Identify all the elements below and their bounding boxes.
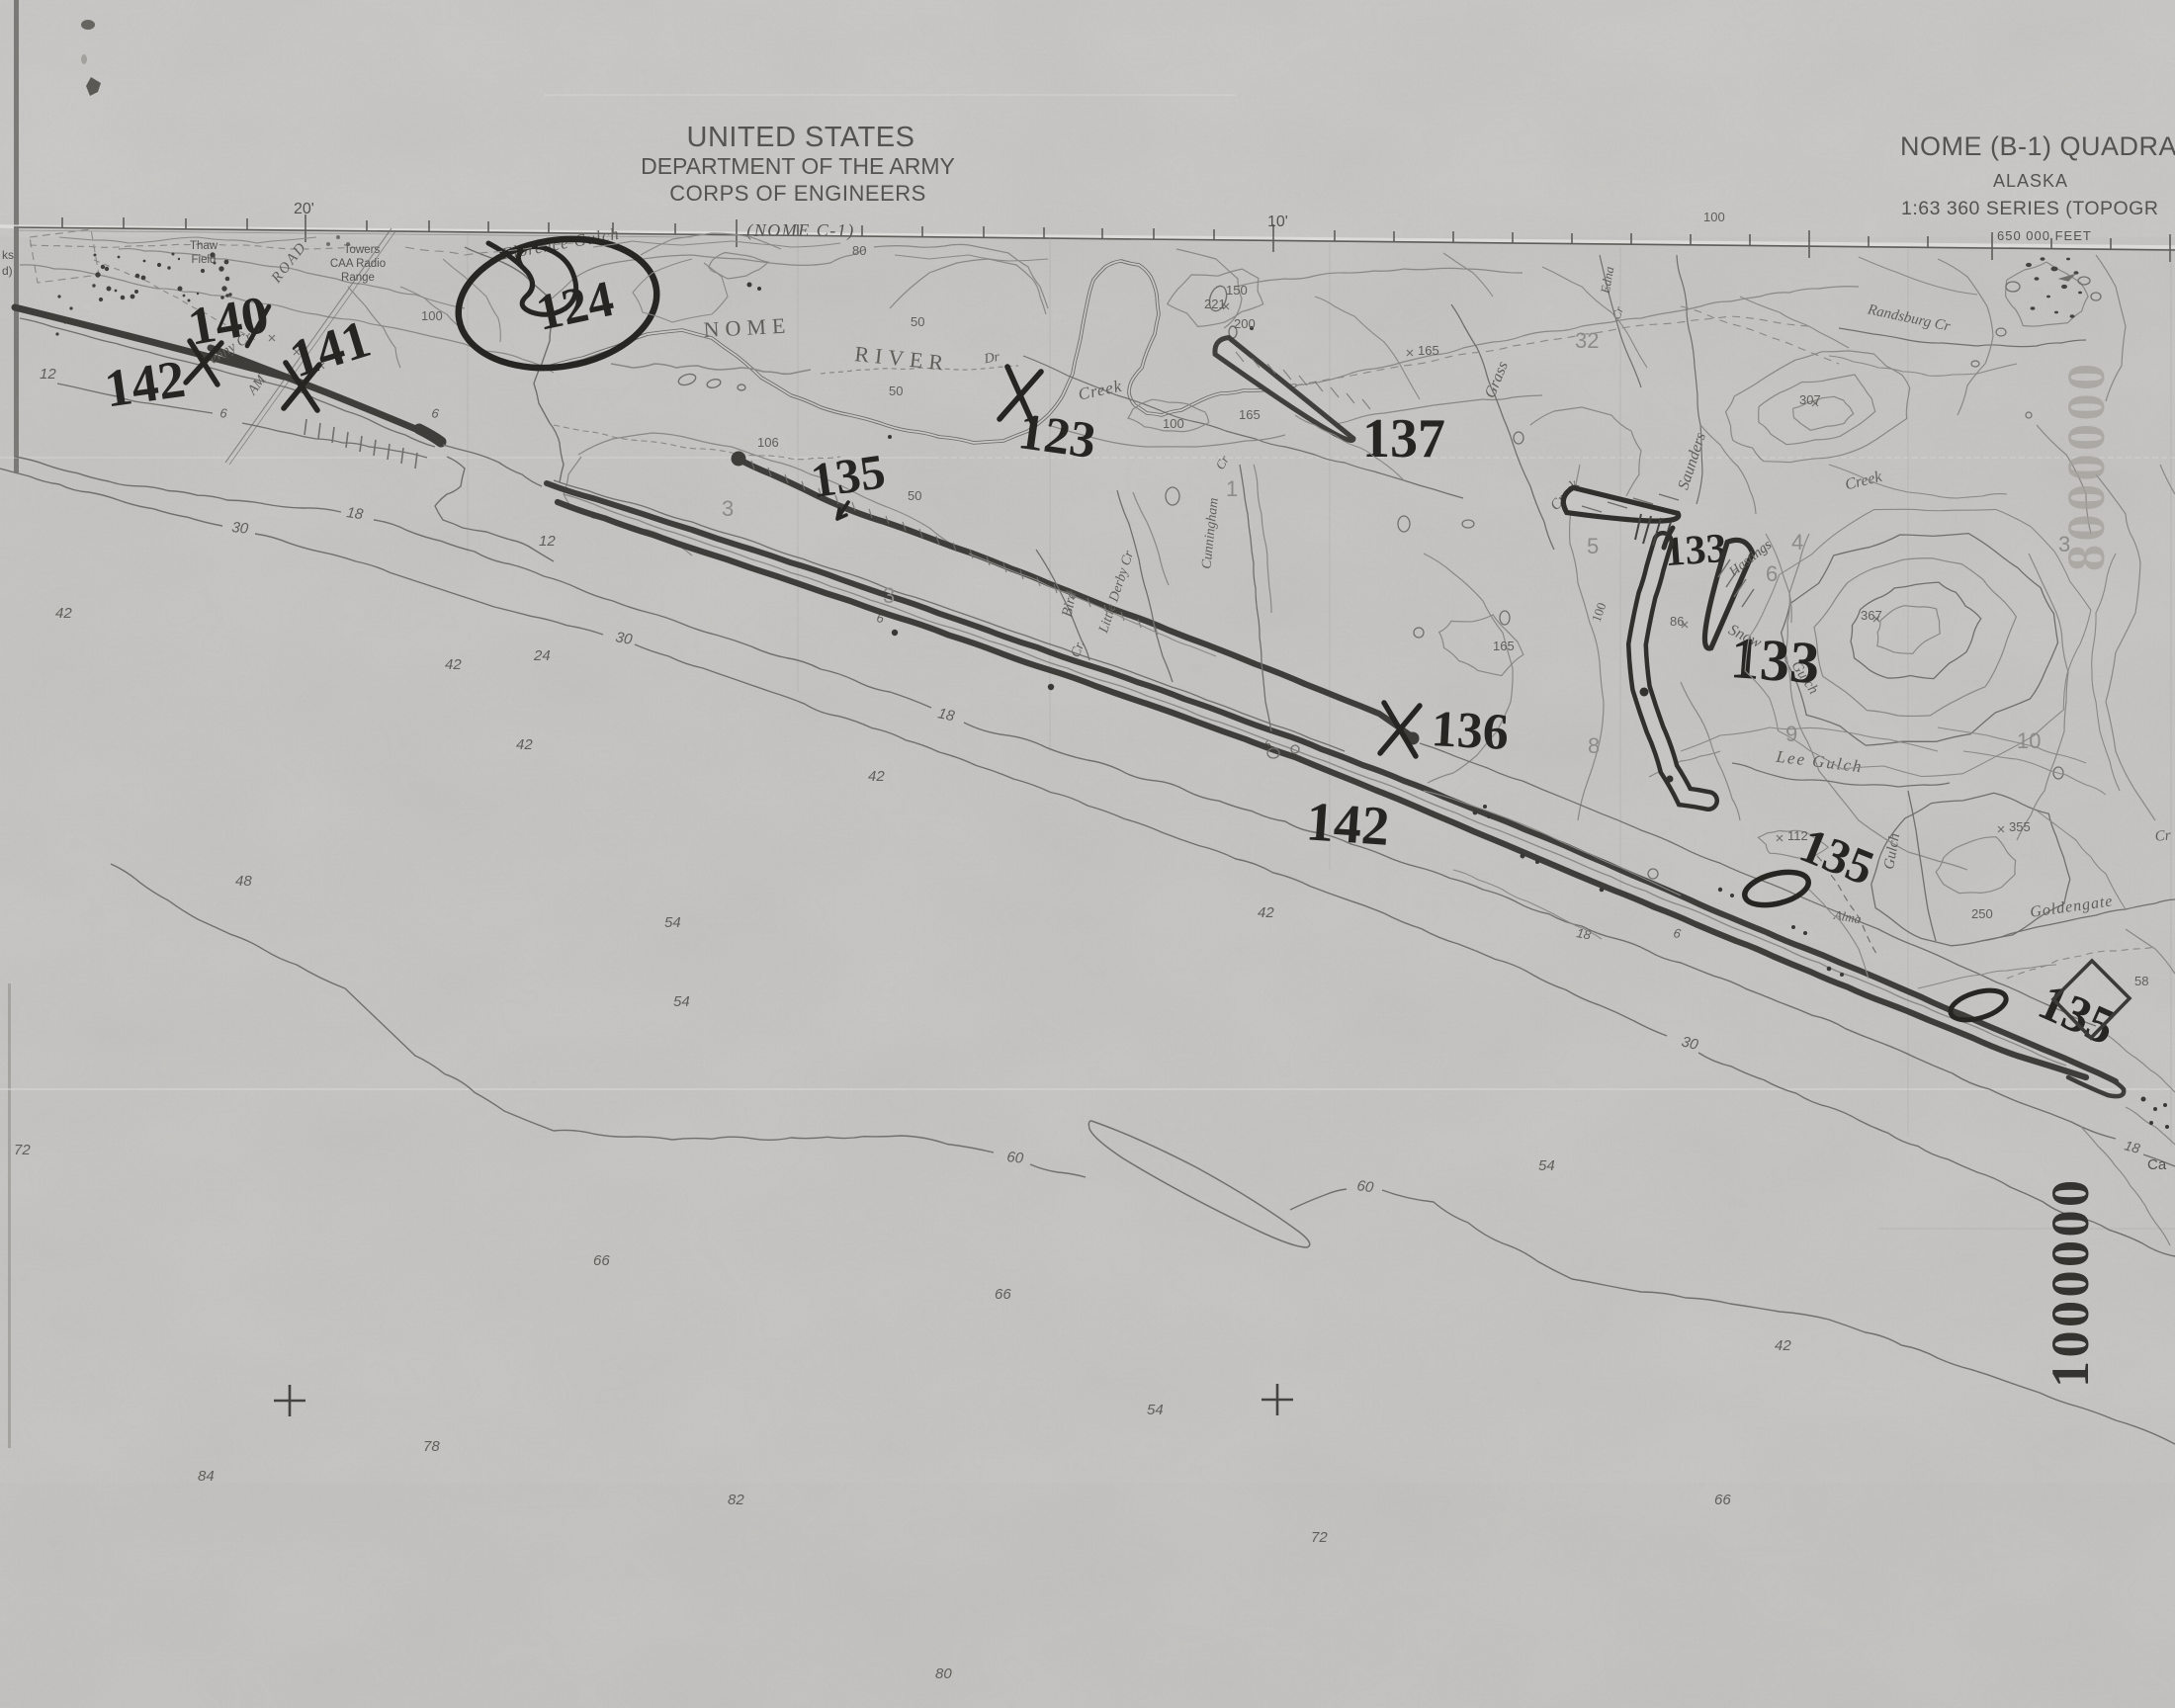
svg-text:60: 60 (1355, 1177, 1375, 1196)
svg-text:250: 250 (1971, 906, 1993, 921)
svg-text:1: 1 (1226, 476, 1238, 501)
svg-text:165: 165 (1418, 343, 1439, 358)
svg-text:42: 42 (55, 605, 72, 622)
svg-text:42: 42 (516, 736, 533, 753)
svg-text:1000000: 1000000 (2041, 1177, 2100, 1389)
svg-text:12: 12 (40, 366, 56, 383)
svg-text:60: 60 (1006, 1149, 1025, 1167)
svg-text:165: 165 (1493, 639, 1515, 653)
svg-text:80: 80 (852, 243, 866, 258)
svg-text:650 000 FEET: 650 000 FEET (1997, 228, 2092, 243)
svg-text:DEPARTMENT OF THE ARMY: DEPARTMENT OF THE ARMY (641, 153, 955, 179)
svg-text:66: 66 (1714, 1492, 1731, 1508)
svg-text:80: 80 (935, 1665, 952, 1682)
svg-text:42: 42 (1258, 904, 1274, 921)
svg-text:100: 100 (1703, 210, 1725, 224)
svg-text:135: 135 (808, 443, 889, 508)
svg-text:(NOME C-1): (NOME C-1) (746, 220, 854, 241)
svg-text:100: 100 (421, 308, 443, 323)
svg-text:30: 30 (231, 519, 250, 538)
svg-text:5: 5 (1587, 534, 1599, 558)
svg-text:165: 165 (1239, 407, 1261, 422)
svg-text:106: 106 (757, 435, 779, 450)
svg-text:NOME: NOME (703, 312, 792, 342)
svg-text:Field: Field (192, 254, 217, 266)
svg-text:4: 4 (1791, 530, 1803, 555)
svg-text:48: 48 (235, 873, 252, 890)
svg-text:72: 72 (1311, 1529, 1328, 1546)
svg-text:133: 133 (1728, 625, 1821, 696)
svg-text:355: 355 (2009, 819, 2031, 834)
svg-text:66: 66 (593, 1252, 610, 1269)
svg-text:54: 54 (664, 914, 681, 931)
svg-text:42: 42 (445, 656, 462, 673)
svg-text:42: 42 (1775, 1337, 1791, 1354)
svg-text:20': 20' (294, 201, 314, 217)
svg-text:78: 78 (423, 1438, 440, 1455)
svg-text:d): d) (2, 264, 13, 278)
svg-text:100: 100 (1163, 416, 1184, 431)
svg-text:NOME (B-1) QUADRAN: NOME (B-1) QUADRAN (1900, 131, 2175, 161)
svg-text:86: 86 (1670, 614, 1684, 629)
svg-text:32: 32 (1575, 328, 1599, 353)
svg-text:54: 54 (673, 993, 690, 1010)
svg-text:1:63 360 SERIES (TOPOGR: 1:63 360 SERIES (TOPOGR (1901, 198, 2158, 219)
svg-text:24: 24 (533, 647, 551, 664)
svg-text:ks: ks (2, 248, 14, 262)
svg-text:3: 3 (883, 583, 895, 608)
svg-text:3: 3 (722, 496, 734, 521)
svg-text:CAA Radio: CAA Radio (330, 258, 386, 270)
svg-text:221: 221 (1204, 297, 1226, 311)
svg-text:12: 12 (539, 533, 556, 550)
svg-text:Dr: Dr (982, 350, 1000, 368)
svg-text:50: 50 (908, 488, 921, 503)
svg-text:Towers: Towers (344, 244, 381, 256)
svg-text:82: 82 (728, 1492, 744, 1508)
svg-text:Thaw: Thaw (190, 240, 218, 252)
svg-text:123: 123 (1015, 403, 1099, 470)
svg-text:UNITED STATES: UNITED STATES (687, 122, 915, 153)
svg-text:72: 72 (14, 1142, 31, 1158)
svg-text:84: 84 (198, 1468, 215, 1485)
svg-text:50: 50 (911, 314, 924, 329)
svg-text:Range: Range (341, 272, 375, 284)
svg-text:9: 9 (1785, 722, 1797, 746)
svg-text:50: 50 (889, 384, 903, 398)
svg-text:CORPS OF ENGINEERS: CORPS OF ENGINEERS (669, 181, 926, 206)
svg-text:Ca: Ca (2147, 1156, 2167, 1173)
svg-text:54: 54 (1538, 1157, 1555, 1174)
svg-text:142: 142 (101, 349, 189, 419)
svg-text:8: 8 (1588, 733, 1600, 758)
svg-text:58: 58 (2134, 974, 2148, 988)
svg-text:66: 66 (995, 1286, 1011, 1303)
svg-text:Cr: Cr (2154, 827, 2171, 844)
svg-text:10': 10' (1267, 213, 1288, 230)
svg-text:8000000: 8000000 (2056, 361, 2116, 572)
svg-text:54: 54 (1147, 1402, 1164, 1418)
svg-text:200: 200 (1234, 316, 1256, 331)
svg-text:42: 42 (868, 768, 885, 785)
svg-text:150: 150 (1226, 283, 1248, 298)
svg-text:137: 137 (1362, 408, 1445, 470)
svg-text:18: 18 (345, 504, 365, 523)
svg-text:ALASKA: ALASKA (1993, 171, 2068, 191)
svg-text:136: 136 (1430, 701, 1510, 761)
svg-text:142: 142 (1304, 791, 1391, 858)
